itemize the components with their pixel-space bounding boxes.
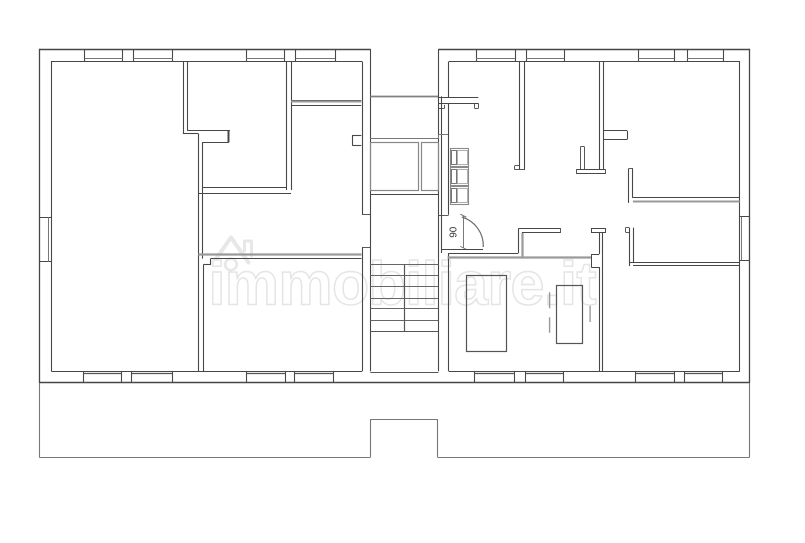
svg-text:90: 90 — [449, 226, 460, 238]
svg-text:immobiliare.it: immobiliare.it — [209, 250, 597, 318]
